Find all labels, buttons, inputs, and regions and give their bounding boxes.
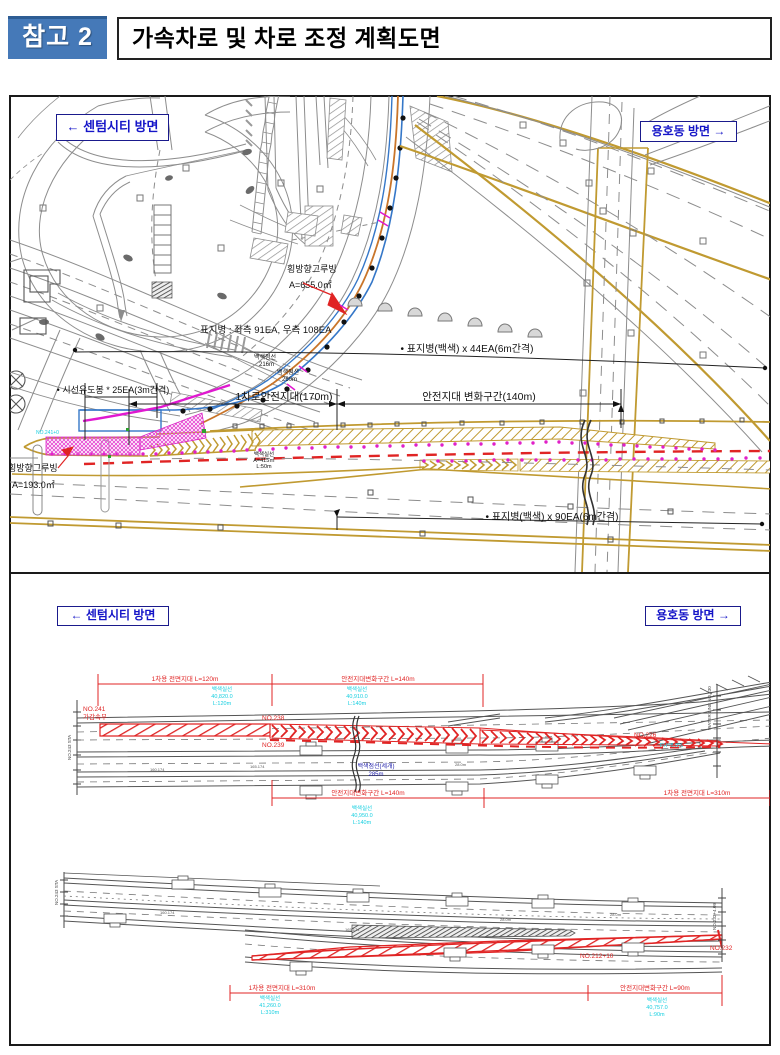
svg-text:백색점선: 백색점선: [277, 368, 299, 376]
svg-text:횡방향그루빙: 횡방향그루빙: [8, 462, 58, 473]
svg-text:L:310m: L:310m: [261, 1010, 280, 1016]
svg-text:백색실선: 백색실선: [352, 804, 372, 812]
svg-text:WATER LINE NO.230: WATER LINE NO.230: [707, 686, 712, 730]
svg-text:216m: 216m: [259, 362, 274, 368]
svg-text:260m: 260m: [282, 377, 297, 383]
svg-text:백색점선(세개): 백색점선(세개): [357, 762, 394, 770]
svg-text:NO.243 STA: NO.243 STA: [67, 735, 72, 760]
svg-text:표지병 : 좌측 91EA, 우측 108EA: 표지병 : 좌측 91EA, 우측 108EA: [200, 325, 332, 336]
svg-text:L:140m: L:140m: [353, 820, 372, 826]
svg-text:A=655.0㎡: A=655.0㎡: [289, 280, 332, 290]
svg-text:160.174: 160.174: [150, 767, 165, 772]
svg-text:NO.239: NO.239: [262, 742, 285, 749]
svg-text:160.174: 160.174: [160, 910, 175, 915]
svg-text:L:140m: L:140m: [348, 701, 367, 707]
svg-text:L:120m: L:120m: [213, 701, 232, 707]
svg-text:40,950.0: 40,950.0: [351, 813, 372, 819]
svg-text:안전지대 변화구간(140m): 안전지대 변화구간(140m): [422, 391, 535, 403]
svg-text:285m: 285m: [368, 772, 383, 778]
svg-text:NO.238: NO.238: [262, 715, 285, 722]
svg-text:NO.232: NO.232: [710, 945, 733, 952]
svg-text:1차용 전면지대 L=310m: 1차용 전면지대 L=310m: [664, 788, 731, 797]
svg-text:안전지대변화구간 L=140m: 안전지대변화구간 L=140m: [341, 674, 414, 683]
svg-text:L:50m: L:50m: [256, 464, 272, 470]
svg-text:백색실선: 백색실선: [260, 994, 280, 1002]
svg-text:• 표지병(백색) x 90EA(6m간격): • 표지병(백색) x 90EA(6m간격): [486, 510, 619, 523]
svg-text:A=193.0㎡: A=193.0㎡: [12, 480, 55, 490]
svg-text:NO.232+4.09: NO.232+4.09: [712, 903, 717, 930]
svg-text:• 시선유도봉 * 25EA(3m간격): • 시선유도봉 * 25EA(3m간격): [57, 384, 170, 395]
svg-text:165.174: 165.174: [250, 764, 265, 769]
svg-text:백색실선: 백색실선: [254, 450, 274, 458]
svg-text:A=415㎡: A=415㎡: [253, 456, 275, 464]
svg-text:백색점선: 백색점선: [254, 353, 276, 361]
svg-text:28.0m: 28.0m: [500, 917, 512, 922]
svg-text:NO.241+0: NO.241+0: [36, 430, 59, 436]
svg-text:28.0m: 28.0m: [455, 762, 467, 767]
svg-text:• 표지병(백색) x 44EA(6m간격): • 표지병(백색) x 44EA(6m간격): [401, 342, 534, 355]
svg-text:FH=8.9%: FH=8.9%: [660, 743, 683, 749]
svg-text:횡방향그루빙: 횡방향그루빙: [287, 263, 337, 274]
svg-text:NO.243 STA: NO.243 STA: [54, 880, 59, 905]
svg-text:40,757.0: 40,757.0: [646, 1005, 667, 1011]
svg-text:28.0m: 28.0m: [610, 912, 622, 917]
svg-text:40,910.0: 40,910.0: [346, 694, 367, 700]
svg-text:165.174: 165.174: [345, 927, 360, 932]
svg-text:40,820.0: 40,820.0: [211, 694, 232, 700]
svg-text:NO.241: NO.241: [83, 706, 106, 713]
svg-text:백색실선: 백색실선: [347, 685, 367, 693]
svg-text:L:90m: L:90m: [649, 1012, 665, 1018]
svg-text:가감속부: 가감속부: [83, 712, 107, 721]
svg-text:안전지대변화구간 L=140m: 안전지대변화구간 L=140m: [331, 788, 404, 797]
svg-text:백색실선: 백색실선: [212, 685, 232, 693]
svg-text:1차용 전면지대 L=120m: 1차용 전면지대 L=120m: [152, 674, 219, 683]
svg-text:41,260.0: 41,260.0: [259, 1003, 280, 1009]
svg-text:1차로안전지대(170m): 1차로안전지대(170m): [235, 391, 332, 403]
svg-text:NO.212+10: NO.212+10: [580, 953, 614, 960]
svg-text:안전지대변화구간 L=90m: 안전지대변화구간 L=90m: [620, 983, 690, 992]
svg-text:1차용 전면지대 L=310m: 1차용 전면지대 L=310m: [249, 983, 316, 992]
svg-text:백색실선: 백색실선: [647, 996, 667, 1004]
svg-text:NO.226: NO.226: [634, 732, 657, 739]
